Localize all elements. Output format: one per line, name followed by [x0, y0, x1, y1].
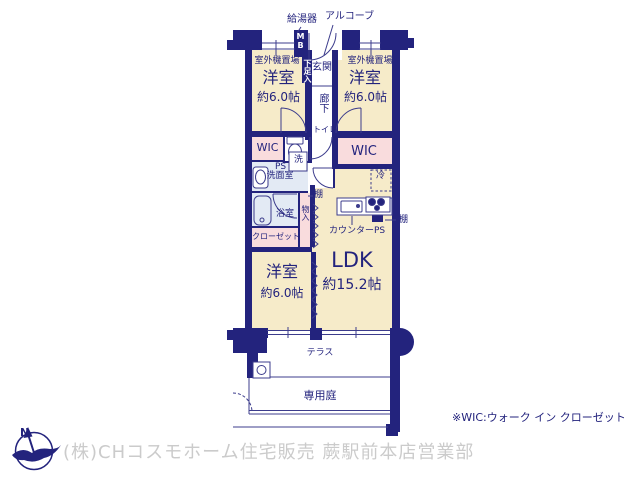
label-shelf-left: 棚 [314, 191, 323, 200]
label-garden: 専用庭 [298, 390, 342, 401]
label-closet: クローゼット [252, 233, 298, 241]
company-watermark: (株)CHコスモホーム住宅販売 蕨駅前本店営業部 [63, 444, 474, 462]
label-bedroom1-size: 約6.0帖 [250, 91, 307, 103]
outdoor-faucet-pan-icon [253, 362, 270, 378]
label-bedroom2-name: 洋室 [338, 70, 392, 86]
compass-north-label: N [20, 427, 29, 438]
label-wic-left: WIC [252, 142, 283, 153]
label-water-heater: 給湯器 [287, 15, 317, 25]
label-washer: 洗 [294, 156, 303, 165]
label-fridge: 冷 [376, 172, 385, 181]
wic-footnote: ※WIC:ウォーク イン クローゼット [452, 412, 626, 423]
stove-icon [366, 197, 390, 212]
label-bedroom1-name: 洋室 [252, 70, 305, 86]
garden-boundary-lines [233, 378, 390, 427]
label-entrance: 玄関 [312, 63, 332, 73]
label-bedroom3-size: 約6.0帖 [250, 287, 314, 299]
label-pipe-space-2: PS [374, 227, 385, 236]
label-ldk-size: 約15.2帖 [312, 278, 392, 292]
corner-column-bump [400, 328, 414, 356]
label-bathroom: 浴室 [276, 210, 294, 219]
floor-plan-page: 給湯器 アルコーブ MB 下足入 玄関 室外機置場 室外機置場 洋室 約6.0帖… [0, 0, 640, 480]
label-bedroom2-size: 約6.0帖 [337, 91, 394, 103]
label-terrace: テラス [298, 349, 342, 358]
label-shelf-right: 棚 [399, 216, 408, 225]
label-wic-right: WIC [336, 145, 392, 158]
label-meter-box: MB [296, 32, 304, 50]
label-bedroom3-name: 洋室 [252, 264, 312, 280]
compass-bird-shape [12, 445, 61, 462]
label-outdoor-unit-right: 室外機置場 [346, 57, 394, 66]
label-alcove: アルコーブ [325, 12, 374, 22]
window-top-right [359, 43, 381, 49]
label-storage: 物入 [301, 205, 309, 221]
label-hallway: 廊下 [317, 93, 327, 113]
label-outdoor-unit-left: 室外機置場 [252, 57, 302, 66]
label-counter: カウンター [329, 227, 374, 236]
label-ldk-name: LDK [312, 250, 392, 271]
label-toilet: トイレ [313, 126, 337, 134]
window-top-left [262, 43, 295, 49]
label-washroom: 洗面室 [252, 172, 308, 181]
